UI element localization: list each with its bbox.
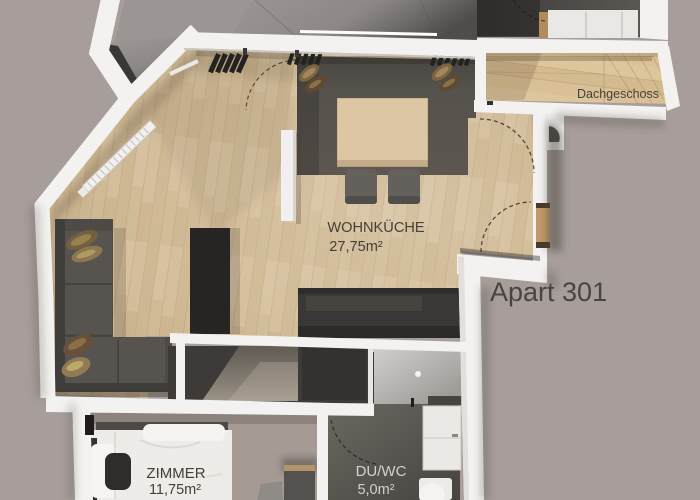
svg-text:11,75m²: 11,75m² — [149, 482, 201, 498]
svg-text:Apart 301: Apart 301 — [490, 277, 607, 307]
svg-text:5,0m²: 5,0m² — [357, 482, 394, 498]
svg-text:ZIMMER: ZIMMER — [146, 465, 205, 482]
svg-text:Dachgeschoss: Dachgeschoss — [577, 87, 659, 101]
svg-text:WOHNKÜCHE: WOHNKÜCHE — [327, 218, 425, 236]
svg-text:27,75m²: 27,75m² — [329, 239, 383, 255]
svg-text:DU/WC: DU/WC — [356, 463, 407, 480]
